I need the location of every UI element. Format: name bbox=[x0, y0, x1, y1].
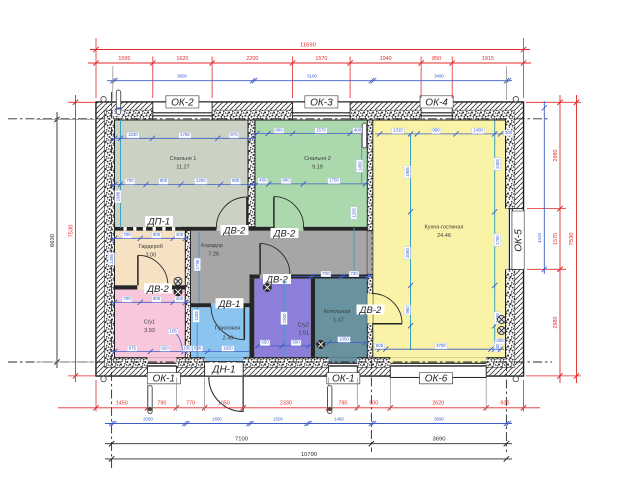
svg-text:185: 185 bbox=[170, 329, 178, 334]
svg-text:1570: 1570 bbox=[316, 127, 326, 132]
svg-text:770: 770 bbox=[186, 401, 195, 407]
svg-text:2980: 2980 bbox=[553, 150, 559, 162]
svg-text:2465: 2465 bbox=[495, 159, 500, 169]
svg-text:11690: 11690 bbox=[300, 43, 316, 49]
svg-text:ДВ-2: ДВ-2 bbox=[359, 305, 382, 316]
svg-text:850: 850 bbox=[432, 56, 441, 62]
svg-text:700: 700 bbox=[322, 271, 330, 276]
svg-text:Спальня 2: Спальня 2 bbox=[304, 156, 331, 162]
svg-text:1760: 1760 bbox=[495, 235, 500, 245]
svg-text:700: 700 bbox=[123, 232, 131, 237]
svg-text:900: 900 bbox=[153, 232, 161, 237]
svg-text:1200: 1200 bbox=[196, 178, 206, 183]
svg-text:3.00: 3.00 bbox=[145, 253, 156, 259]
svg-text:1490: 1490 bbox=[334, 416, 344, 421]
svg-text:7100: 7100 bbox=[235, 437, 248, 443]
svg-text:1920: 1920 bbox=[282, 313, 287, 323]
svg-text:1595: 1595 bbox=[118, 56, 130, 62]
svg-text:3800: 3800 bbox=[177, 74, 187, 79]
svg-text:1205: 1205 bbox=[352, 208, 357, 218]
svg-text:10790: 10790 bbox=[301, 452, 317, 458]
svg-text:ОК-1: ОК-1 bbox=[153, 373, 176, 384]
svg-text:1310: 1310 bbox=[393, 128, 403, 133]
svg-text:1650: 1650 bbox=[212, 416, 222, 421]
svg-text:1750: 1750 bbox=[329, 178, 339, 183]
svg-text:ДВ-2: ДВ-2 bbox=[146, 284, 169, 295]
svg-text:ОК-4: ОК-4 bbox=[425, 97, 448, 108]
svg-text:930: 930 bbox=[500, 401, 509, 407]
svg-text:6630: 6630 bbox=[50, 234, 56, 247]
svg-text:900: 900 bbox=[369, 401, 378, 407]
svg-text:3750: 3750 bbox=[436, 343, 446, 348]
svg-text:1.51: 1.51 bbox=[298, 331, 309, 337]
svg-text:900: 900 bbox=[232, 178, 240, 183]
svg-text:100: 100 bbox=[183, 345, 191, 350]
svg-text:24.46: 24.46 bbox=[437, 233, 451, 239]
svg-text:800: 800 bbox=[275, 127, 283, 132]
svg-text:Котельная: Котельная bbox=[324, 309, 351, 315]
svg-text:980: 980 bbox=[432, 128, 440, 133]
svg-text:1400: 1400 bbox=[473, 128, 483, 133]
svg-text:ДВ-2: ДВ-2 bbox=[273, 229, 296, 240]
svg-text:ДН-1: ДН-1 bbox=[211, 364, 235, 375]
svg-text:960: 960 bbox=[405, 306, 410, 314]
svg-text:900: 900 bbox=[160, 178, 168, 183]
svg-text:7.26: 7.26 bbox=[208, 252, 219, 258]
svg-text:ДВ-2: ДВ-2 bbox=[223, 226, 246, 237]
svg-text:2980: 2980 bbox=[553, 317, 559, 329]
svg-text:2330: 2330 bbox=[280, 401, 292, 407]
svg-text:1.17: 1.17 bbox=[333, 318, 344, 324]
svg-text:300: 300 bbox=[505, 130, 513, 135]
svg-text:1050: 1050 bbox=[218, 401, 230, 407]
svg-text:Гардероб: Гардероб bbox=[139, 244, 163, 250]
svg-text:400: 400 bbox=[176, 296, 184, 301]
svg-text:ОК-2: ОК-2 bbox=[171, 97, 194, 108]
svg-text:790: 790 bbox=[338, 401, 347, 407]
svg-text:1790: 1790 bbox=[195, 259, 200, 269]
svg-text:900: 900 bbox=[153, 296, 161, 301]
svg-text:650: 650 bbox=[261, 340, 269, 345]
svg-text:400: 400 bbox=[354, 127, 362, 132]
svg-text:2060: 2060 bbox=[405, 248, 410, 258]
svg-text:ОК-5: ОК-5 bbox=[513, 229, 524, 252]
svg-text:ОК-3: ОК-3 bbox=[310, 97, 333, 108]
svg-text:1905: 1905 bbox=[405, 167, 410, 177]
svg-text:700: 700 bbox=[123, 296, 131, 301]
svg-text:1495: 1495 bbox=[109, 254, 114, 264]
svg-text:С/у2: С/у2 bbox=[298, 323, 309, 329]
svg-text:500: 500 bbox=[194, 345, 202, 350]
svg-text:2.48: 2.48 bbox=[223, 336, 234, 342]
svg-text:970: 970 bbox=[230, 132, 238, 137]
svg-text:900: 900 bbox=[282, 178, 290, 183]
svg-text:1050: 1050 bbox=[339, 336, 349, 341]
svg-text:1650: 1650 bbox=[223, 345, 233, 350]
svg-text:1750: 1750 bbox=[180, 132, 190, 137]
svg-text:3.93: 3.93 bbox=[144, 328, 155, 334]
svg-text:1500: 1500 bbox=[273, 416, 283, 421]
svg-text:1915: 1915 bbox=[482, 56, 494, 62]
svg-text:11.27: 11.27 bbox=[176, 165, 189, 171]
svg-text:1570: 1570 bbox=[315, 56, 327, 62]
svg-text:ОК-1: ОК-1 bbox=[332, 373, 355, 384]
svg-text:Кухня-гостиная: Кухня-гостиная bbox=[425, 225, 464, 231]
svg-text:1620: 1620 bbox=[176, 56, 188, 62]
svg-text:1205: 1205 bbox=[194, 311, 199, 321]
svg-text:2200: 2200 bbox=[246, 56, 258, 62]
svg-text:Коридор: Коридор bbox=[201, 243, 223, 249]
svg-text:450: 450 bbox=[259, 178, 267, 183]
svg-text:4419: 4419 bbox=[537, 233, 542, 243]
svg-text:1985: 1985 bbox=[116, 191, 121, 201]
svg-text:400: 400 bbox=[176, 232, 184, 237]
svg-text:Спальня 1: Спальня 1 bbox=[170, 156, 197, 162]
svg-text:700: 700 bbox=[126, 178, 134, 183]
svg-text:ДВ-1: ДВ-1 bbox=[218, 299, 240, 310]
svg-text:ОК-6: ОК-6 bbox=[425, 373, 448, 384]
svg-text:7530: 7530 bbox=[569, 233, 575, 246]
svg-text:Прихожая: Прихожая bbox=[215, 326, 241, 332]
svg-text:790: 790 bbox=[157, 401, 166, 407]
svg-text:730: 730 bbox=[350, 271, 358, 276]
svg-text:ДП-1: ДП-1 bbox=[147, 217, 170, 228]
svg-text:3490: 3490 bbox=[434, 74, 444, 79]
svg-text:2000: 2000 bbox=[143, 416, 153, 421]
svg-text:9.19: 9.19 bbox=[312, 165, 323, 171]
svg-text:1020: 1020 bbox=[128, 132, 138, 137]
svg-text:3100: 3100 bbox=[307, 74, 317, 79]
svg-text:505: 505 bbox=[376, 343, 384, 348]
svg-text:435: 435 bbox=[496, 338, 504, 343]
svg-text:500: 500 bbox=[292, 340, 300, 345]
svg-text:1570: 1570 bbox=[553, 233, 559, 245]
svg-text:3690: 3690 bbox=[433, 437, 446, 443]
svg-text:7530: 7530 bbox=[68, 225, 74, 238]
svg-text:975: 975 bbox=[129, 345, 137, 350]
svg-text:1450: 1450 bbox=[116, 401, 128, 407]
svg-text:1940: 1940 bbox=[380, 56, 392, 62]
svg-text:С/у1: С/у1 bbox=[144, 320, 155, 326]
svg-text:1450: 1450 bbox=[357, 161, 362, 171]
svg-text:3690: 3690 bbox=[434, 416, 444, 421]
svg-text:920: 920 bbox=[161, 345, 169, 350]
svg-text:2620: 2620 bbox=[432, 401, 444, 407]
